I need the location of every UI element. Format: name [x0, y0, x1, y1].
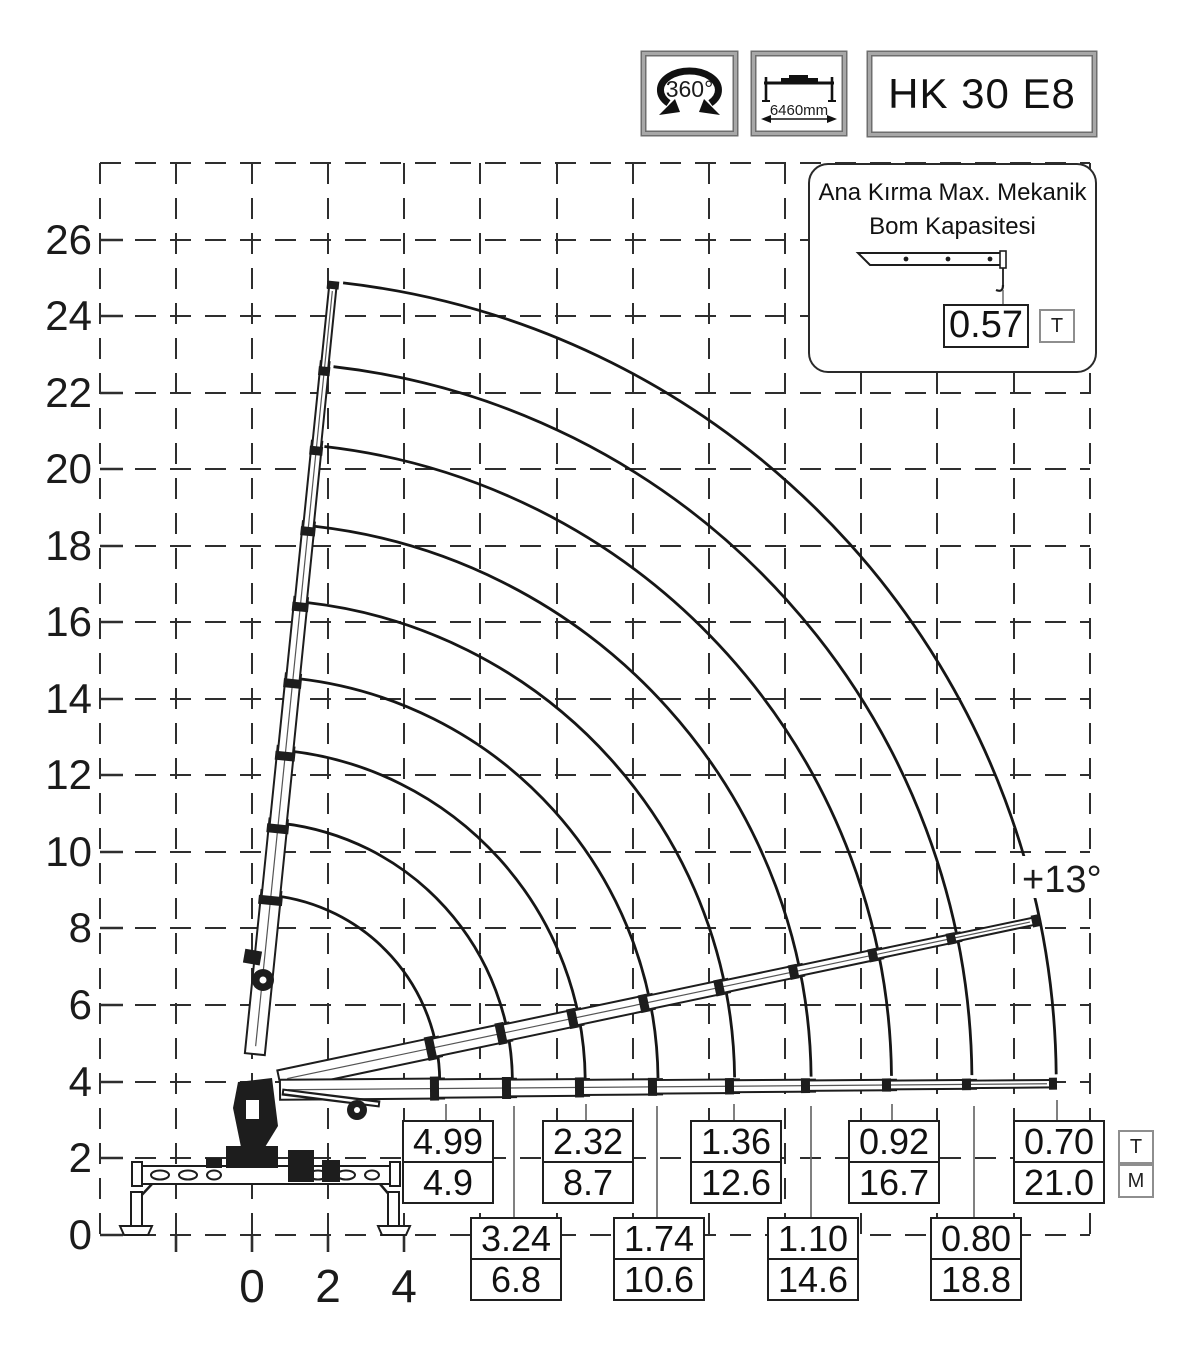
x-label: 4 [391, 1260, 417, 1312]
capacity-value: 1.10 [769, 1219, 857, 1258]
max-capacity-value: 0.57 [943, 304, 1029, 348]
y-label: 24 [45, 292, 92, 339]
callout-title-line1: Ana Kırma Max. Mekanik [810, 179, 1095, 207]
outreach-value: 4.9 [404, 1161, 492, 1202]
boom-raised [243, 280, 345, 1055]
y-label: 8 [69, 904, 92, 951]
callout-title-line2: Bom Kapasitesi [810, 213, 1095, 241]
y-label: 12 [45, 751, 92, 798]
capacity-value: 1.74 [615, 1219, 703, 1258]
outrigger-span-label: 6460mm [770, 102, 828, 119]
y-axis-labels: 26 24 22 20 18 16 14 12 10 8 6 4 2 0 [45, 216, 92, 1258]
capacity-value: 0.70 [1015, 1122, 1103, 1161]
x-label: 2 [315, 1260, 341, 1312]
outrigger-badge: 6460mm [752, 52, 846, 135]
load-box: 1.74 10.6 [613, 1217, 705, 1301]
unit-meters-box: M [1118, 1164, 1154, 1198]
outreach-value: 12.6 [692, 1161, 780, 1202]
load-box: 1.36 12.6 [690, 1120, 782, 1204]
load-box: 4.99 4.9 [402, 1120, 494, 1204]
y-label: 20 [45, 445, 92, 492]
capacity-value: 4.99 [404, 1122, 492, 1161]
rotation-360-icon: 360° [645, 55, 734, 126]
boom-horizontal [280, 1072, 1057, 1102]
model-name: HK 30 E8 [871, 55, 1093, 133]
y-label: 18 [45, 522, 92, 569]
y-label: 4 [69, 1058, 92, 1105]
outreach-value: 10.6 [615, 1258, 703, 1299]
load-box: 2.32 8.7 [542, 1120, 634, 1204]
load-box: 1.10 14.6 [767, 1217, 859, 1301]
y-label: 2 [69, 1134, 92, 1181]
outreach-arcs [273, 283, 1056, 1080]
y-label: 22 [45, 369, 92, 416]
max-capacity-unit: T [1039, 309, 1075, 343]
outreach-value: 8.7 [544, 1161, 632, 1202]
y-label: 14 [45, 675, 92, 722]
boom-mid-angle [277, 908, 1042, 1092]
outreach-value: 16.7 [850, 1161, 938, 1202]
load-box: 0.70 21.0 [1013, 1120, 1105, 1204]
model-badge: HK 30 E8 [868, 52, 1096, 136]
y-label: 26 [45, 216, 92, 263]
load-box: 0.92 16.7 [848, 1120, 940, 1204]
x-axis-labels: 0 2 4 [239, 1260, 417, 1312]
load-box: 0.80 18.8 [930, 1217, 1022, 1301]
boom-angle-label: +13° [1022, 859, 1102, 901]
capacity-value: 0.80 [932, 1219, 1020, 1258]
outrigger-span-icon: 6460mm [755, 55, 843, 126]
capacity-value: 3.24 [472, 1219, 560, 1258]
y-label: 10 [45, 828, 92, 875]
y-label: 16 [45, 598, 92, 645]
unit-tons-box: T [1118, 1130, 1154, 1164]
boom-angle-annotation: +13° [1018, 856, 1106, 901]
max-capacity-callout: Ana Kırma Max. Mekanik Bom Kapasitesi 0.… [808, 163, 1097, 373]
rotation-badge: 360° [642, 52, 737, 135]
crane-load-diagram-page: 26 24 22 20 18 16 14 12 10 8 6 4 2 0 0 2… [0, 0, 1200, 1354]
outreach-value: 6.8 [472, 1258, 560, 1299]
outreach-value: 18.8 [932, 1258, 1020, 1299]
load-box: 3.24 6.8 [470, 1217, 562, 1301]
rotation-label: 360° [666, 76, 714, 102]
y-label: 0 [69, 1211, 92, 1258]
capacity-value: 2.32 [544, 1122, 632, 1161]
outreach-value: 21.0 [1015, 1161, 1103, 1202]
boom-hook-icon [828, 247, 1078, 307]
y-label: 6 [69, 981, 92, 1028]
capacity-value: 1.36 [692, 1122, 780, 1161]
capacity-value: 0.92 [850, 1122, 938, 1161]
outreach-value: 14.6 [769, 1258, 857, 1299]
x-label: 0 [239, 1260, 265, 1312]
